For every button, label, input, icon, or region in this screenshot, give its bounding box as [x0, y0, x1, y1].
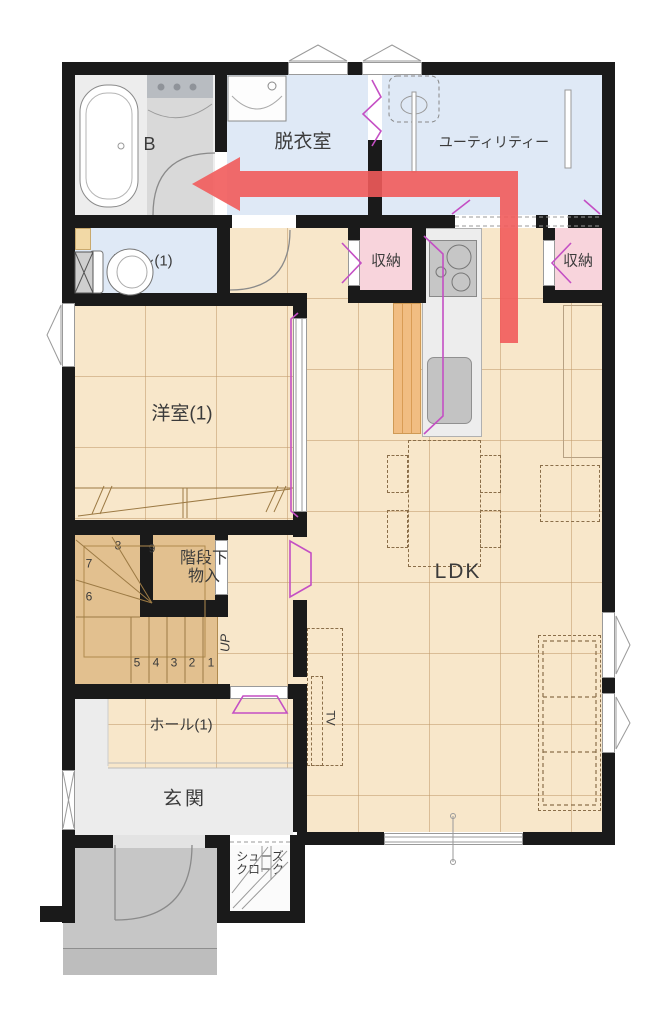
desk-chair: [540, 465, 600, 522]
wall: [293, 293, 307, 318]
wall: [523, 832, 615, 845]
stair-number: 8: [115, 539, 122, 552]
storage-door: [543, 240, 555, 286]
wall: [543, 228, 555, 240]
wall: [40, 906, 64, 922]
room-label-entrance: 玄関: [163, 788, 207, 809]
stair-number: 3: [171, 656, 178, 669]
window: [288, 62, 348, 75]
dining-chair: [387, 510, 408, 548]
wall: [62, 835, 113, 848]
stair-number: 7: [86, 557, 93, 570]
storage-door: [348, 240, 360, 286]
dining-chair: [480, 510, 501, 548]
stair-number: 2: [189, 656, 196, 669]
shoe-closet-line1: シューズ: [236, 850, 283, 864]
kitchen-stove: [429, 240, 477, 297]
wall: [290, 835, 305, 923]
kitchen-sink: [427, 357, 472, 424]
wall: [62, 684, 230, 699]
wall: [217, 911, 305, 923]
wall: [215, 62, 227, 152]
dining-chair: [480, 455, 501, 493]
sofa: [538, 635, 601, 811]
stair-number: 6: [86, 590, 93, 603]
wall: [296, 215, 370, 228]
stair-number: 1: [208, 656, 215, 669]
wall: [297, 832, 384, 845]
wall: [360, 290, 426, 303]
wall: [348, 228, 360, 240]
wall: [62, 367, 75, 770]
wall: [348, 286, 360, 303]
stair-number: 4: [153, 656, 160, 669]
wall: [140, 600, 218, 617]
window: [602, 693, 615, 753]
wall: [62, 215, 232, 228]
room-label-under-stair: 階段下 物入: [180, 550, 228, 586]
stair-number: 9: [149, 542, 156, 555]
stair-number: 5: [134, 656, 141, 669]
shoe-closet-line2: クローク: [236, 863, 284, 877]
wall: [62, 293, 307, 306]
window: [362, 62, 422, 75]
room-label-utility: ユーティリティー: [439, 135, 549, 151]
window: [62, 303, 75, 367]
wall-counter-desk: [563, 305, 603, 458]
tv-label: TV: [323, 710, 336, 725]
room-label-hall: ホール(1): [149, 718, 212, 735]
wall: [568, 215, 615, 228]
dining-table: [408, 440, 481, 567]
room-label-ub: UB: [124, 134, 161, 154]
room-label-western: 洋室(1): [151, 403, 212, 424]
wall: [293, 600, 307, 677]
tv-screen: [311, 676, 323, 766]
toilet-side-shelf: [75, 228, 91, 250]
porch-step: [63, 948, 217, 975]
sliding-door: [293, 318, 307, 512]
window: [602, 612, 615, 678]
wall: [293, 695, 307, 832]
hall-opening: [230, 686, 288, 699]
wall: [288, 684, 307, 699]
ub-counter: [147, 75, 213, 98]
floor-plan: UB 脱衣室 ユーティリティー トイレ(1) 収納 収納 洋室(1) 階段下 物…: [0, 0, 665, 1024]
wall: [217, 835, 230, 923]
dining-chair: [387, 455, 408, 493]
wall: [602, 62, 615, 612]
wall: [602, 678, 615, 693]
under-stair-line1: 階段下: [180, 550, 228, 567]
kitchen-cabinet: [393, 303, 421, 434]
wall: [370, 215, 455, 228]
room-label-storage-left: 収納: [371, 254, 401, 271]
wall: [543, 290, 615, 303]
stairs-up-label: UP: [219, 634, 234, 652]
room-label-ldk: LDK: [435, 560, 482, 584]
room-label-shoe-closet: シューズ クローク: [236, 851, 284, 878]
wall: [62, 520, 307, 535]
window: [384, 833, 523, 845]
wall: [215, 595, 228, 617]
door-opening: [215, 152, 227, 215]
entrance-side-strip: [75, 699, 108, 768]
under-stair-line2: 物入: [188, 568, 220, 585]
room-label-toilet: トイレ(1): [109, 254, 172, 271]
folding-door-opening: [368, 75, 382, 140]
window: [62, 770, 75, 830]
room-label-dressing: 脱衣室: [274, 131, 331, 152]
wall: [536, 215, 548, 228]
room-label-storage-right: 収納: [563, 254, 593, 271]
wall: [62, 62, 75, 303]
entrance-threshold: [113, 835, 205, 848]
